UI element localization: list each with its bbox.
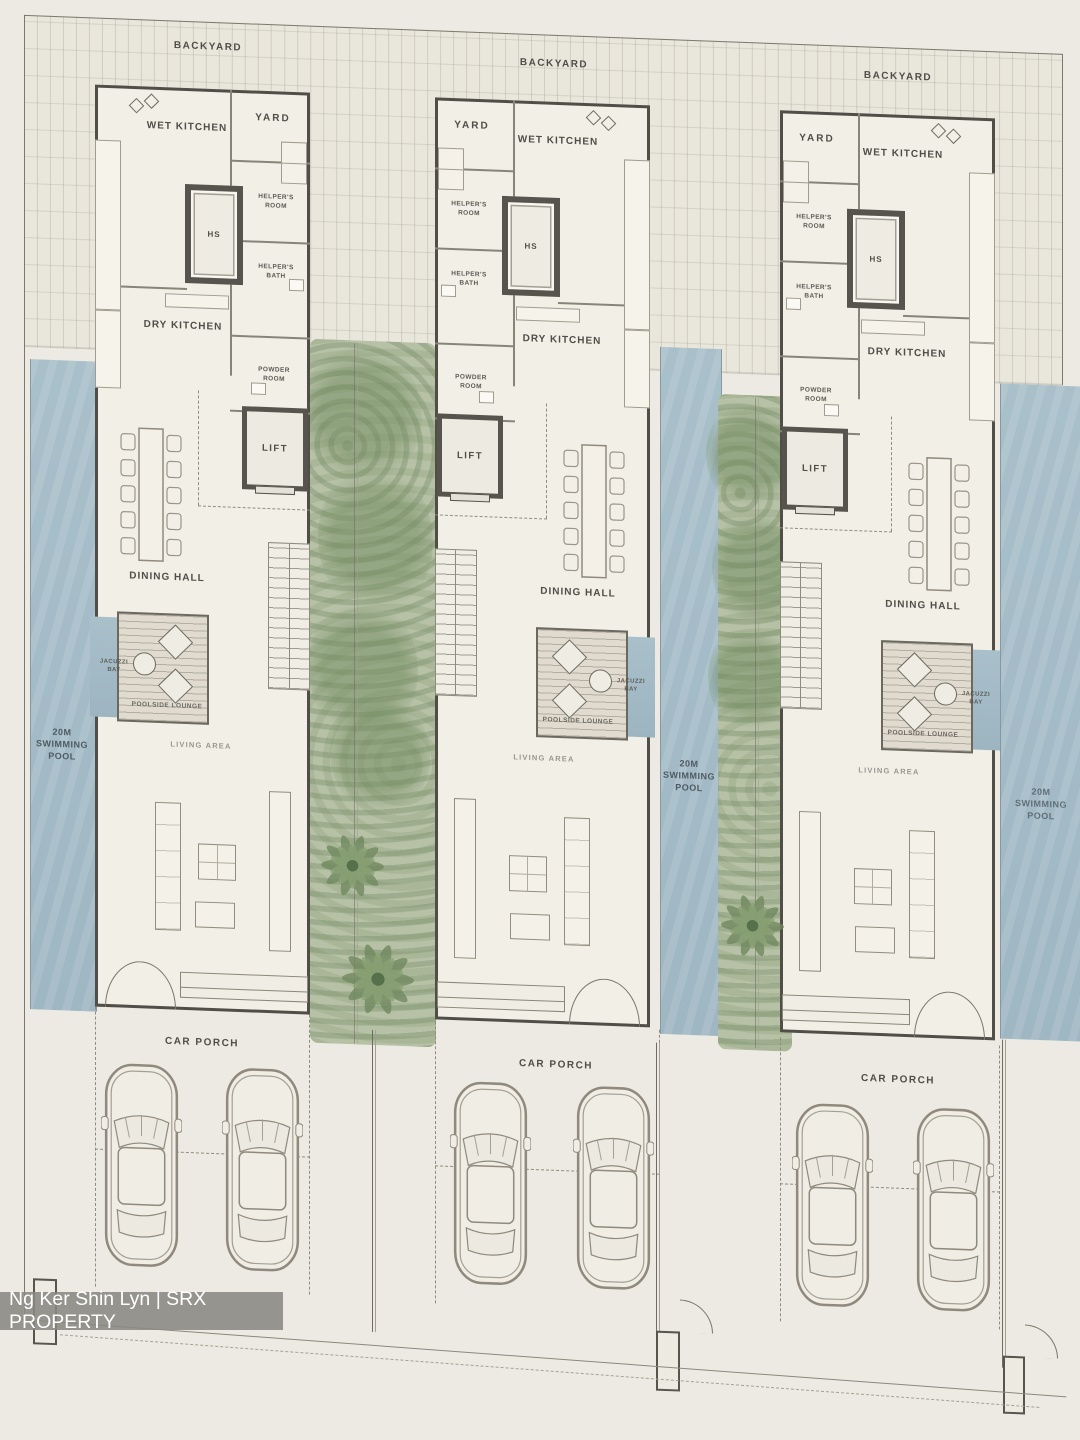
kitchen-island <box>516 306 580 322</box>
swimming-pool-label: 20M SWIMMING POOL <box>654 756 724 795</box>
kitchen-counter <box>95 140 121 311</box>
kitchen-counter <box>969 172 995 343</box>
car-porch-boundary <box>309 1015 310 1295</box>
dining-table-icon <box>558 438 630 585</box>
dining-table-icon <box>903 451 975 598</box>
kitchen-counter <box>624 159 650 330</box>
stairs-icon <box>268 542 310 691</box>
void-dashed-line <box>891 416 892 531</box>
lounge-chair-icon <box>158 668 193 703</box>
coffee-table-icon <box>198 843 236 880</box>
tv-console-icon <box>454 798 476 959</box>
lounge-chair-icon <box>158 624 193 659</box>
helpers-bath-label: HELPER'S BATH <box>443 270 495 289</box>
household-shelter-label: HS <box>207 230 220 241</box>
kitchen-island <box>165 293 229 309</box>
jacuzzi-tub-icon <box>934 682 957 706</box>
kitchen-island <box>861 319 925 335</box>
kitchen-counter <box>624 329 650 408</box>
sofa-icon <box>155 802 181 931</box>
powder-room-label: POWDER ROOM <box>445 373 497 392</box>
dining-hall-label: DINING HALL <box>885 598 960 614</box>
void-dashed-line <box>198 390 199 505</box>
lounge-chair-icon <box>552 639 587 674</box>
car-porch-label: CAR PORCH <box>519 1058 593 1072</box>
unit-2-floorplan: WET KITCHEN YARD HELPER'S ROOM HS HELPER… <box>435 97 650 1027</box>
jacuzzi-bay-label: JACUZZI BAY <box>957 690 995 708</box>
gate-door-arc <box>1025 1324 1058 1358</box>
car-porch-boundary <box>95 1007 96 1287</box>
ottoman-icon <box>510 913 550 941</box>
swimming-pool-label: 20M SWIMMING POOL <box>1006 785 1076 824</box>
car-icon <box>222 1062 303 1277</box>
road-edge-line <box>60 1334 1039 1408</box>
car-porch-boundary <box>999 1046 1000 1330</box>
toilet-icon <box>251 382 266 395</box>
helpers-room-label: HELPER'S ROOM <box>250 193 302 212</box>
hob-icon <box>929 124 961 147</box>
yard-label: YARD <box>454 119 489 133</box>
ottoman-icon <box>195 901 235 929</box>
car-icon <box>101 1058 182 1273</box>
car-icon <box>573 1081 654 1296</box>
yard-label: YARD <box>255 111 290 125</box>
kitchen-counter <box>95 310 121 389</box>
dining-hall-label: DINING HALL <box>129 569 204 585</box>
side-gate <box>656 1331 680 1392</box>
porch-bench <box>180 972 308 1003</box>
tv-console-icon <box>269 791 291 952</box>
lounge-chair-icon <box>897 696 932 731</box>
floorplan-page: WET KITCHEN YARD HELPER'S ROOM HS HELPER… <box>0 0 1080 1440</box>
car-icon <box>792 1098 873 1313</box>
jacuzzi-bay-label: JACUZZI BAY <box>612 677 650 695</box>
site-boundary-left <box>24 15 25 1319</box>
stairs-icon <box>780 561 822 710</box>
laundry-appliance <box>281 142 307 185</box>
porch-bench <box>782 994 910 1025</box>
plot-boundary-line <box>372 1030 376 1332</box>
laundry-appliance <box>783 160 809 203</box>
palm-tree-icon <box>318 917 438 1042</box>
household-shelter-label: HS <box>524 241 537 252</box>
car-porch-label: CAR PORCH <box>861 1073 935 1087</box>
hob-icon <box>129 94 161 117</box>
gate-door-arc <box>680 1300 713 1334</box>
car-icon <box>450 1076 531 1291</box>
jacuzzi-tub-icon <box>133 652 156 676</box>
lift-label: LIFT <box>457 450 483 463</box>
stairs-icon <box>435 548 477 697</box>
helpers-bath-label: HELPER'S BATH <box>788 283 840 302</box>
lounge-chair-icon <box>897 652 932 687</box>
palm-tree-icon <box>700 871 805 980</box>
unit-3-floorplan: WET KITCHEN YARD HELPER'S ROOM HS HELPER… <box>780 110 995 1040</box>
swimming-pool-label: 20M SWIMMING POOL <box>27 725 97 764</box>
ottoman-icon <box>855 926 895 954</box>
lift-label: LIFT <box>802 463 828 476</box>
sofa-icon <box>909 830 935 959</box>
unit-1-floorplan: WET KITCHEN YARD HELPER'S ROOM HS HELPER… <box>95 85 310 1015</box>
jacuzzi-tub-icon <box>589 669 612 693</box>
void-dashed-line <box>546 403 547 518</box>
porch-bench <box>437 981 565 1012</box>
toilet-icon <box>479 391 494 404</box>
dining-hall-label: DINING HALL <box>540 585 615 601</box>
kitchen-counter <box>969 342 995 421</box>
plot-boundary-line <box>1002 1040 1006 1368</box>
helpers-room-label: HELPER'S ROOM <box>788 213 840 232</box>
plot-boundary-line <box>656 1043 660 1359</box>
jacuzzi-bay-label: JACUZZI BAY <box>95 657 133 675</box>
hob-icon <box>584 111 616 134</box>
palm-tree-icon <box>300 811 405 920</box>
site-boundary-right <box>1062 54 1063 385</box>
watermark-text: Ng Ker Shin Lyn | SRX PROPERTY <box>9 1288 283 1334</box>
lounge-chair-icon <box>552 683 587 718</box>
car-porch-boundary <box>435 1021 436 1303</box>
coffee-table-icon <box>854 868 892 905</box>
household-shelter-label: HS <box>869 254 882 265</box>
car-porch-label: CAR PORCH <box>165 1036 239 1050</box>
helpers-room-label: HELPER'S ROOM <box>443 200 495 219</box>
lift-label: LIFT <box>262 443 288 456</box>
helpers-bath-label: HELPER'S BATH <box>250 263 302 282</box>
coffee-table-icon <box>509 855 547 892</box>
laundry-appliance <box>438 147 464 190</box>
swimming-pool-right <box>1000 384 1080 1042</box>
dining-table-icon <box>115 421 187 568</box>
powder-room-label: POWDER ROOM <box>790 386 842 405</box>
agent-watermark: Ng Ker Shin Lyn | SRX PROPERTY <box>0 1292 283 1330</box>
yard-label: YARD <box>799 132 834 146</box>
car-porch-boundary <box>780 1037 781 1321</box>
site-plan: WET KITCHEN YARD HELPER'S ROOM HS HELPER… <box>0 0 1080 1440</box>
powder-room-label: POWDER ROOM <box>248 366 300 385</box>
swimming-pool-left <box>30 359 97 1012</box>
car-icon <box>913 1102 994 1317</box>
sofa-icon <box>564 817 590 946</box>
toilet-icon <box>824 404 839 417</box>
